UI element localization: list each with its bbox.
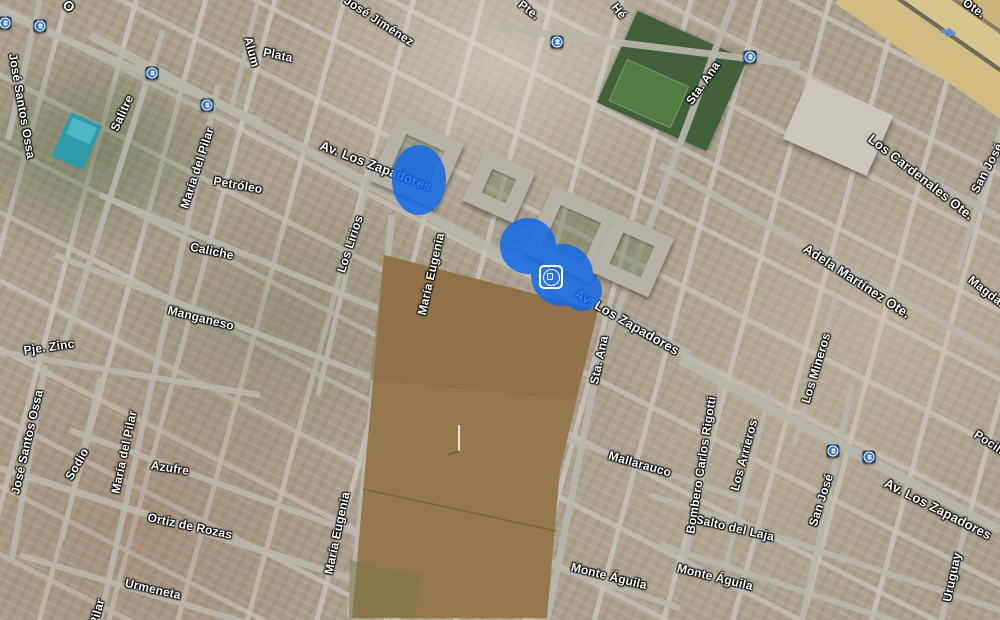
bus-stop-icon[interactable] [146,67,159,80]
bus-stop-icon[interactable] [744,51,757,64]
bus-stop-icon[interactable] [551,36,564,49]
bus-stop-icon[interactable] [0,17,12,30]
bus-stop-icon[interactable] [863,451,876,464]
bus-stop-icon[interactable] [34,20,47,33]
satellite-imagery [0,0,1000,620]
bus-stop-icon[interactable] [201,99,214,112]
selected-bus-stop-icon[interactable] [539,265,563,289]
bus-stop-icon[interactable] [827,445,840,458]
pool-water [66,117,97,144]
satellite-map[interactable]: OJosé JiménezPte.HéOte.PlataAlumJosé San… [0,0,1000,620]
